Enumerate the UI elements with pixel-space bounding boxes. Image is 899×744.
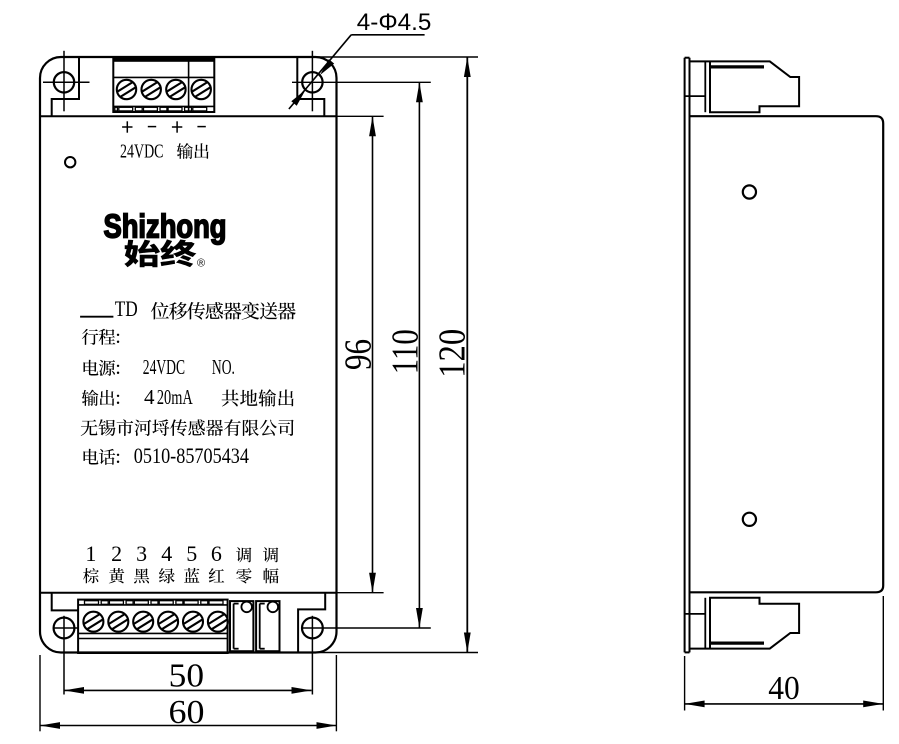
svg-text:4: 4: [144, 385, 155, 409]
svg-text:0510-85705434: 0510-85705434: [134, 443, 249, 468]
svg-text:6: 6: [211, 541, 222, 566]
svg-text:50: 50: [169, 657, 204, 694]
svg-text:20mA: 20mA: [157, 385, 193, 409]
svg-text:40: 40: [768, 670, 800, 707]
svg-text:®: ®: [197, 258, 205, 270]
svg-text:120: 120: [431, 329, 473, 378]
svg-text:24VDC: 24VDC: [143, 355, 185, 379]
svg-text:TD: TD: [115, 296, 138, 321]
svg-text:5: 5: [186, 541, 197, 566]
svg-text:Shizhong: Shizhong: [104, 207, 227, 244]
svg-text:2: 2: [111, 541, 122, 566]
svg-text:NO.: NO.: [212, 355, 235, 379]
svg-text:3: 3: [136, 541, 147, 566]
svg-text:4: 4: [161, 541, 172, 566]
svg-text:24VDC: 24VDC: [120, 141, 164, 163]
svg-text:60: 60: [169, 694, 205, 731]
svg-text:96: 96: [337, 339, 379, 370]
svg-text:1: 1: [85, 541, 96, 566]
svg-text:110: 110: [385, 329, 427, 374]
svg-text:4-Φ4.5: 4-Φ4.5: [357, 9, 432, 36]
